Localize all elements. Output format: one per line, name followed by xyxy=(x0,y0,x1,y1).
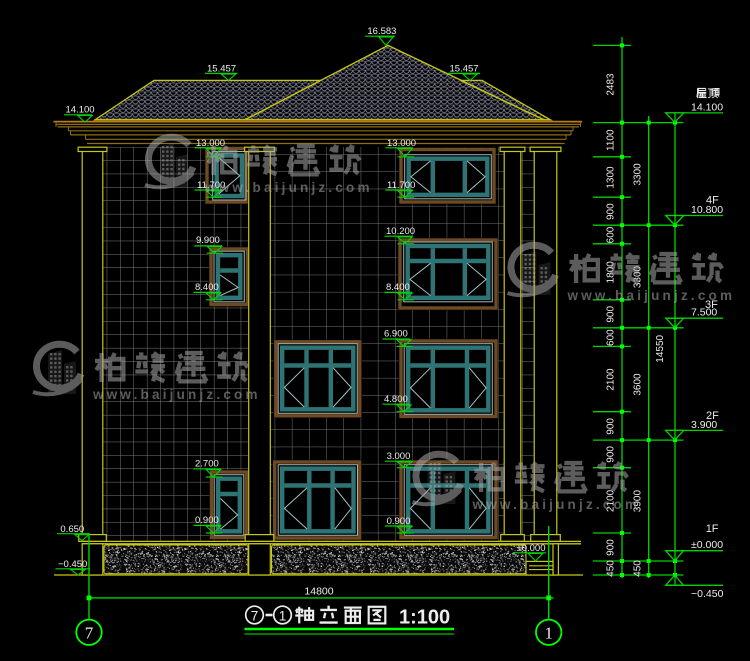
svg-text:3600: 3600 xyxy=(633,373,644,396)
svg-text:450: 450 xyxy=(633,560,644,577)
svg-text:14.100: 14.100 xyxy=(691,101,723,113)
svg-text:2100: 2100 xyxy=(606,368,617,391)
svg-text:3300: 3300 xyxy=(633,163,644,186)
svg-text:1100: 1100 xyxy=(606,129,617,151)
svg-text:1:100: 1:100 xyxy=(399,607,450,629)
svg-text:10.800: 10.800 xyxy=(691,204,723,216)
svg-text:−0.450: −0.450 xyxy=(691,588,724,600)
svg-text:10.200: 10.200 xyxy=(386,226,415,237)
svg-text:3.900: 3.900 xyxy=(691,419,717,431)
svg-text:14.100: 14.100 xyxy=(66,104,95,115)
svg-text:900: 900 xyxy=(606,446,617,463)
svg-text:www.baijunjz.com: www.baijunjz.com xyxy=(92,387,261,402)
svg-text:7: 7 xyxy=(85,624,94,643)
svg-text:1: 1 xyxy=(279,608,287,623)
svg-text:9.900: 9.900 xyxy=(196,235,220,246)
svg-text:450: 450 xyxy=(606,560,617,577)
svg-text:www.baijunjz.com: www.baijunjz.com xyxy=(472,497,641,512)
svg-text:3.000: 3.000 xyxy=(387,451,411,462)
svg-text:2.700: 2.700 xyxy=(195,459,219,470)
svg-text:7.500: 7.500 xyxy=(691,307,717,319)
svg-text:14800: 14800 xyxy=(304,585,333,597)
svg-text:8.400: 8.400 xyxy=(195,282,219,293)
svg-text:www.baijunjz.com: www.baijunjz.com xyxy=(567,288,736,303)
svg-text:600: 600 xyxy=(606,329,617,346)
svg-text:16.583: 16.583 xyxy=(367,26,396,37)
svg-text:1: 1 xyxy=(544,624,553,643)
svg-text:7: 7 xyxy=(251,608,259,623)
svg-text:0.900: 0.900 xyxy=(195,515,219,526)
svg-text:±0.000: ±0.000 xyxy=(691,539,723,551)
svg-text:900: 900 xyxy=(606,418,617,435)
svg-text:www.baijunjz.com: www.baijunjz.com xyxy=(204,180,373,195)
svg-text:600: 600 xyxy=(606,226,617,243)
svg-text:0.900: 0.900 xyxy=(387,516,411,527)
svg-text:900: 900 xyxy=(606,539,617,556)
svg-text:6.900: 6.900 xyxy=(384,329,408,340)
svg-text:4.800: 4.800 xyxy=(384,394,408,405)
svg-text:8.400: 8.400 xyxy=(386,282,410,293)
svg-text:2483: 2483 xyxy=(606,73,617,96)
svg-text:900: 900 xyxy=(606,203,617,220)
svg-text:1F: 1F xyxy=(706,523,719,535)
svg-text:900: 900 xyxy=(606,306,617,323)
svg-text:1300: 1300 xyxy=(606,166,617,189)
svg-text:14550: 14550 xyxy=(655,334,666,362)
